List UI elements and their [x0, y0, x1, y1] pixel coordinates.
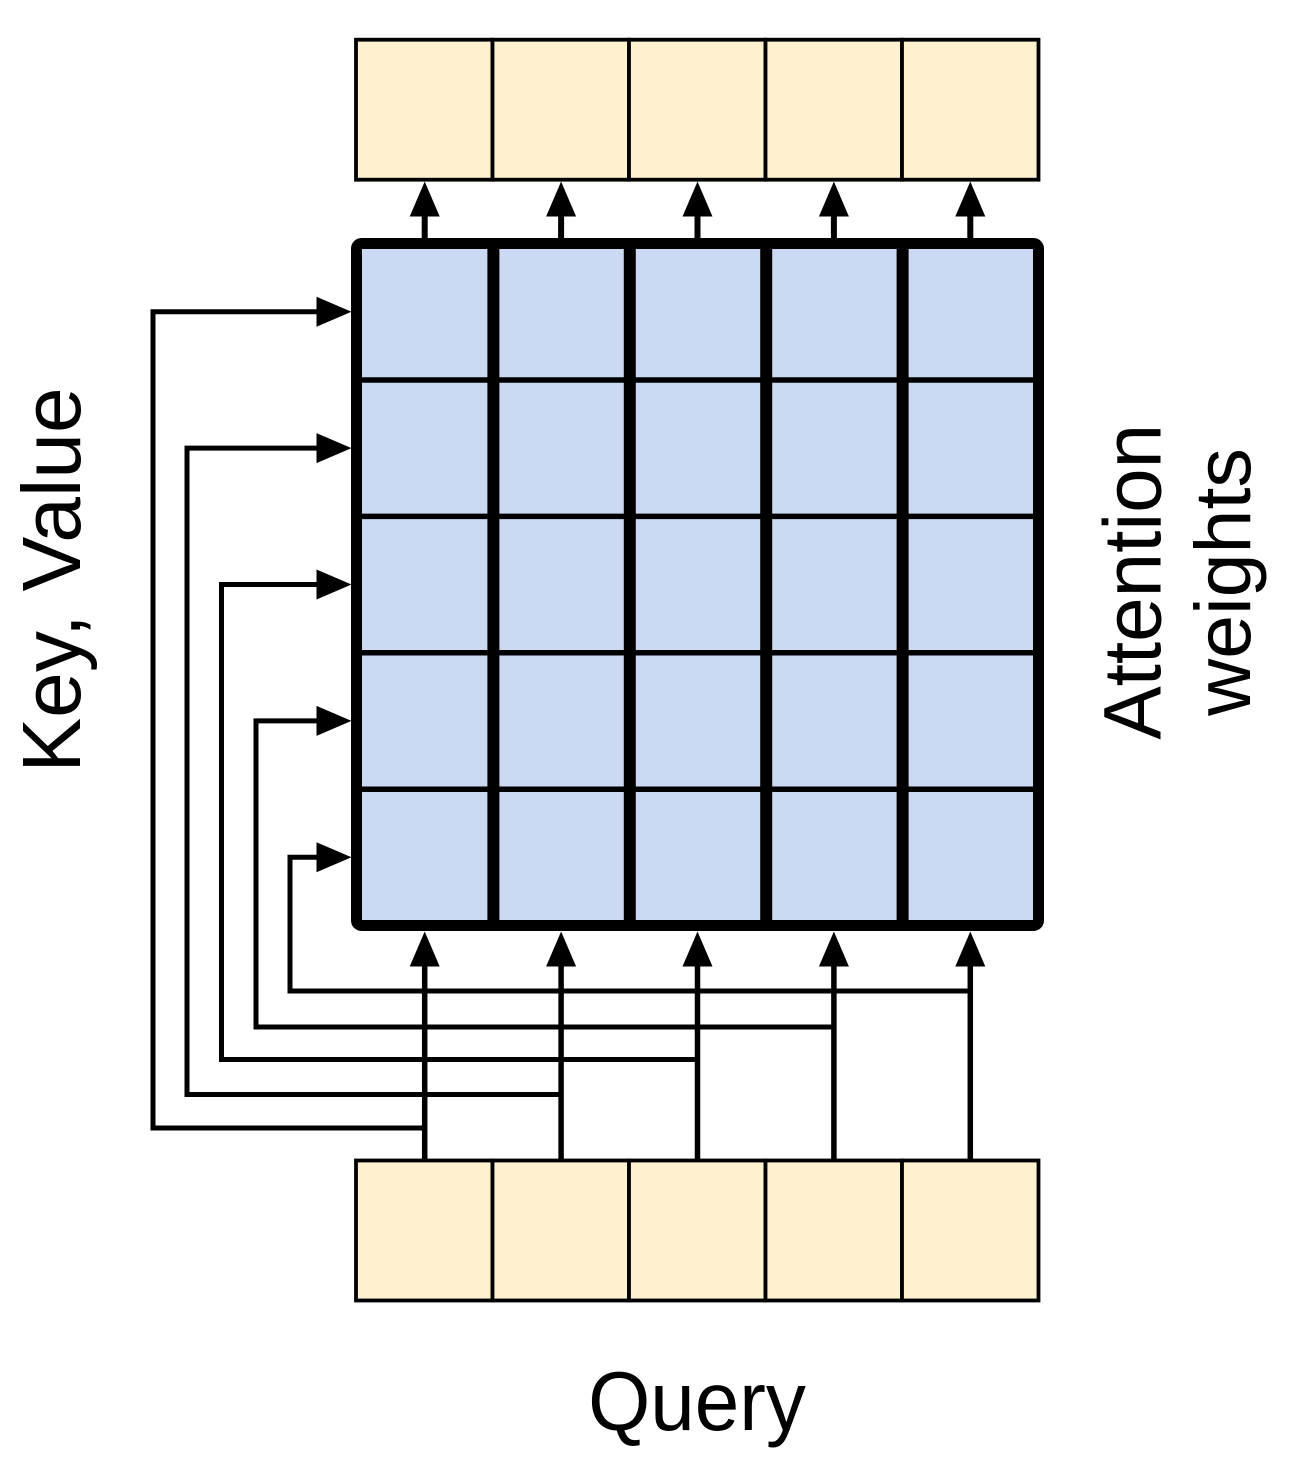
svg-text:weights: weights	[1178, 448, 1267, 717]
svg-text:Attention: Attention	[1088, 424, 1179, 740]
svg-text:Key, Value: Key, Value	[7, 387, 98, 772]
svg-text:Query: Query	[588, 1356, 806, 1449]
